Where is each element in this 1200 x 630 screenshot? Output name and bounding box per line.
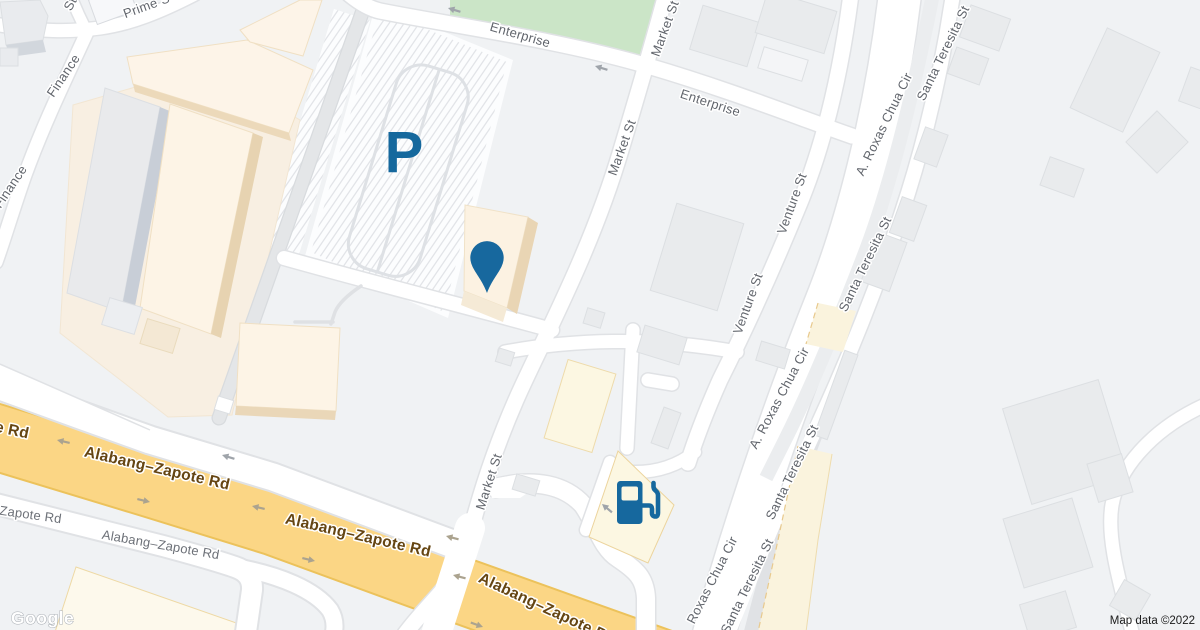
svg-text:P: P (385, 120, 424, 185)
svg-text:Google: Google (11, 608, 74, 628)
svg-text:Map data ©2022: Map data ©2022 (1110, 615, 1195, 627)
